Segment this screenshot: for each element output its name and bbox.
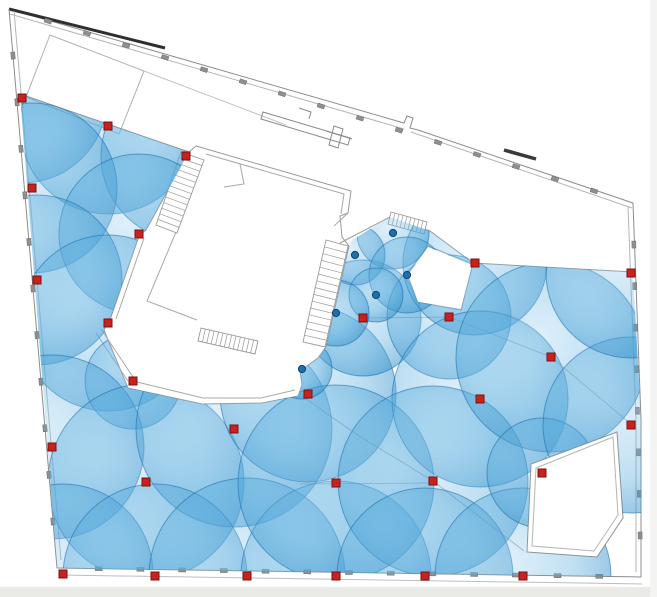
boundary-tick xyxy=(632,241,636,248)
sprinkler-red-marker xyxy=(627,421,635,429)
boundary-tick xyxy=(27,238,32,245)
boundary-tick xyxy=(11,52,16,59)
sprinkler-red-marker xyxy=(59,570,67,578)
sprinkler-blue-marker xyxy=(372,291,379,298)
sprinkler-red-marker xyxy=(182,152,190,160)
boundary-tick xyxy=(638,532,642,539)
sprinkler-red-marker xyxy=(230,425,238,433)
site-plan-page xyxy=(0,0,657,597)
sprinkler-red-marker xyxy=(243,572,251,580)
site-coverage-plan xyxy=(0,0,657,597)
sprinkler-red-marker xyxy=(129,377,137,385)
sprinkler-red-marker xyxy=(476,395,484,403)
sprinkler-red-marker xyxy=(151,572,159,580)
boundary-tick xyxy=(31,285,36,292)
sprinkler-red-marker xyxy=(28,184,36,192)
sprinkler-red-marker xyxy=(429,477,437,485)
sprinkler-red-marker xyxy=(304,390,312,398)
sprinkler-red-marker xyxy=(332,572,340,580)
scan-bottom-band xyxy=(0,587,657,597)
sprinkler-blue-marker xyxy=(332,309,339,316)
sprinkler-red-marker xyxy=(627,269,635,277)
sprinkler-red-marker xyxy=(359,314,367,322)
scan-right-band xyxy=(650,0,657,597)
sprinkler-red-marker xyxy=(48,443,56,451)
sprinkler-blue-marker xyxy=(403,271,410,278)
boundary-tick xyxy=(19,145,24,152)
sprinkler-red-marker xyxy=(18,94,26,102)
sprinkler-red-marker xyxy=(547,353,555,361)
sprinkler-blue-marker xyxy=(298,365,305,372)
sprinkler-red-marker xyxy=(332,479,340,487)
sprinkler-blue-marker xyxy=(351,251,358,258)
sprinkler-red-marker xyxy=(135,230,143,238)
sprinkler-red-marker xyxy=(104,319,112,327)
boundary-tick xyxy=(35,331,40,338)
sprinkler-red-marker xyxy=(104,122,112,130)
sprinkler-red-marker xyxy=(538,469,546,477)
sprinkler-red-marker xyxy=(445,313,453,321)
sprinkler-red-marker xyxy=(519,572,527,580)
sprinkler-red-marker xyxy=(421,572,429,580)
sprinkler-red-marker xyxy=(471,259,479,267)
sprinkler-blue-marker xyxy=(389,229,396,236)
sprinkler-red-marker xyxy=(142,478,150,486)
boundary-tick xyxy=(23,192,28,199)
sprinkler-red-marker xyxy=(33,276,41,284)
